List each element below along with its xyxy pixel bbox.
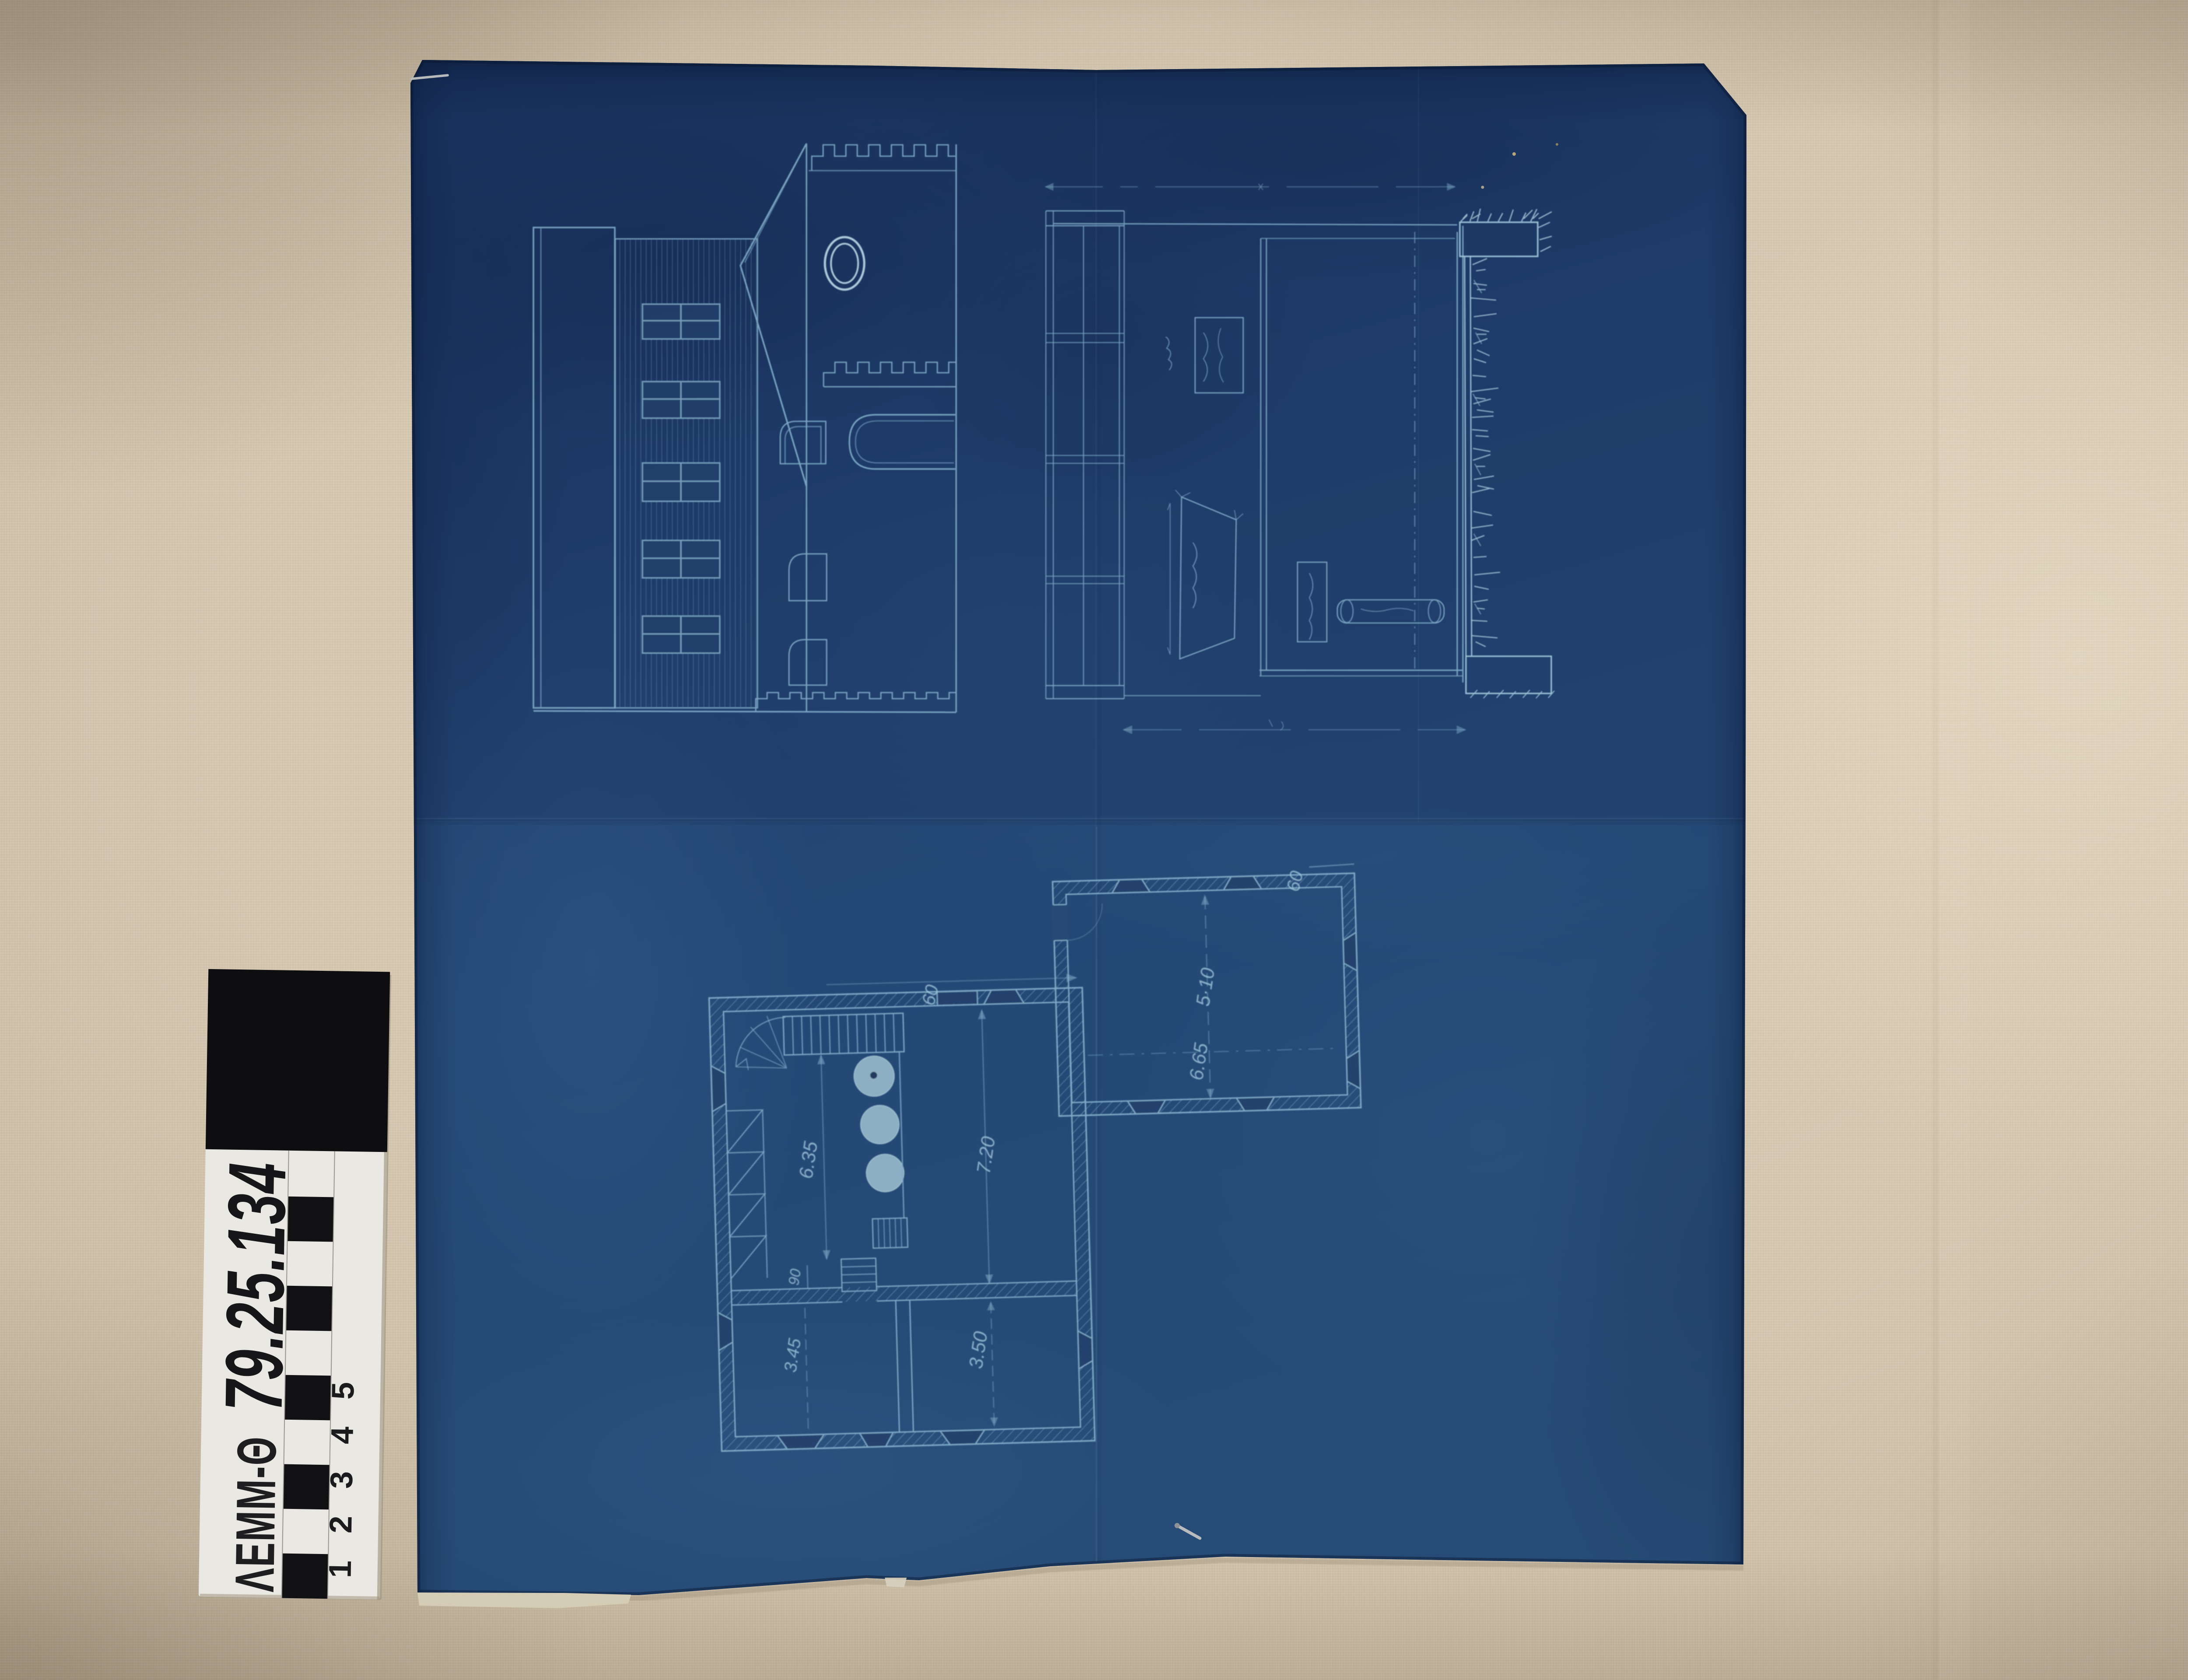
svg-text:3: 3 <box>324 1471 360 1489</box>
svg-text:90: 90 <box>785 1268 804 1287</box>
svg-text:5: 5 <box>326 1382 361 1400</box>
svg-text:2: 2 <box>323 1515 359 1533</box>
svg-text:4: 4 <box>325 1426 360 1444</box>
svg-text:1: 1 <box>323 1560 358 1578</box>
svg-text:79.25.134: 79.25.134 <box>208 1161 303 1412</box>
svg-text:ΛΕΜΜ-Θ: ΛΕΜΜ-Θ <box>224 1435 288 1592</box>
